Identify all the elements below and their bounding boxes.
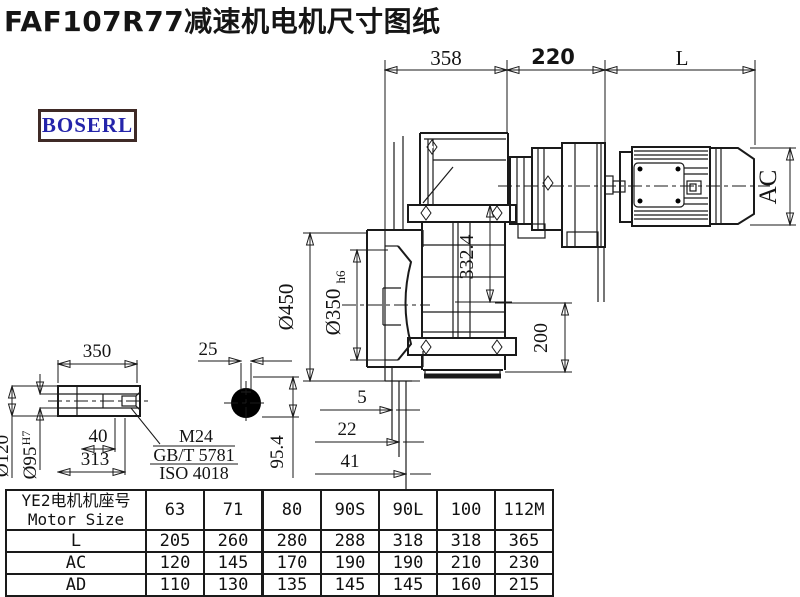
dim-220-label: 220 bbox=[531, 45, 575, 69]
table-cell: 130 bbox=[204, 574, 263, 596]
table-cell: 170 bbox=[263, 552, 322, 574]
dim-25-label: 25 bbox=[199, 339, 218, 360]
table-cell: 190 bbox=[379, 552, 437, 574]
dim-AC-label: AC bbox=[755, 170, 782, 205]
dim-d95-label: Ø95 bbox=[20, 447, 41, 480]
dim-200-label: 200 bbox=[530, 323, 552, 353]
table-header-cn: YE2电机机座号 bbox=[7, 491, 145, 510]
dim-350-label: Ø350 bbox=[321, 289, 345, 336]
dim-40-label: 40 bbox=[89, 426, 108, 447]
dim-313-label: 313 bbox=[81, 449, 110, 470]
table-cell: 145 bbox=[379, 574, 437, 596]
size-col-112M: 112M bbox=[495, 490, 553, 530]
dim-d95-tolerance: H7 bbox=[19, 431, 33, 446]
thread-standard-label: GB/T 5781 bbox=[153, 445, 234, 465]
table-cell: 135 bbox=[263, 574, 322, 596]
dim-d120-label: Ø120 bbox=[0, 435, 13, 477]
table-cell: 210 bbox=[437, 552, 495, 574]
table-cell: 120 bbox=[146, 552, 204, 574]
table-cell: 318 bbox=[379, 530, 437, 552]
table-cell: 230 bbox=[495, 552, 553, 574]
dim-5-label: 5 bbox=[357, 387, 367, 408]
dim-350-tolerance: h6 bbox=[333, 270, 348, 284]
table-cell: 110 bbox=[146, 574, 204, 596]
table-cell: 260 bbox=[204, 530, 263, 552]
dim-350-length-label: 350 bbox=[83, 341, 112, 362]
table-cell: 160 bbox=[437, 574, 495, 596]
size-col-80: 80 bbox=[263, 490, 322, 530]
size-col-100: 100 bbox=[437, 490, 495, 530]
thread-spec-label: M24 bbox=[179, 426, 213, 446]
row-label-AC: AC bbox=[6, 552, 146, 574]
table-cell: 365 bbox=[495, 530, 553, 552]
table-row-AD: AD 110 130 135 145 145 160 215 bbox=[6, 574, 553, 596]
table-cell: 318 bbox=[437, 530, 495, 552]
size-col-90S: 90S bbox=[321, 490, 379, 530]
table-header-row: YE2电机机座号 Motor Size 63 71 80 90S 90L 100… bbox=[6, 490, 553, 530]
table-row-AC: AC 120 145 170 190 190 210 230 bbox=[6, 552, 553, 574]
dim-41-label: 41 bbox=[341, 451, 360, 472]
dim-L-label: L bbox=[676, 46, 689, 70]
table-header-cell: YE2电机机座号 Motor Size bbox=[6, 490, 146, 530]
table-cell: 190 bbox=[321, 552, 379, 574]
step-dimensions: 5 22 41 bbox=[315, 387, 431, 474]
motor-size-table: YE2电机机座号 Motor Size 63 71 80 90S 90L 100… bbox=[5, 489, 554, 597]
row-label-AD: AD bbox=[6, 574, 146, 596]
table-cell: 288 bbox=[321, 530, 379, 552]
dim-450-label: Ø450 bbox=[274, 284, 298, 331]
table-header-en: Motor Size bbox=[7, 510, 145, 529]
table-cell: 205 bbox=[146, 530, 204, 552]
dim-332-label: 332.4 bbox=[456, 235, 478, 280]
drawing-page: { "title": "FAF107R77减速机电机尺寸图纸", "logo":… bbox=[0, 0, 800, 596]
thread-iso-label: ISO 4018 bbox=[159, 463, 229, 483]
size-col-71: 71 bbox=[204, 490, 263, 530]
table-cell: 145 bbox=[204, 552, 263, 574]
motor bbox=[498, 147, 770, 226]
table-row-L: L 205 260 280 288 318 318 365 bbox=[6, 530, 553, 552]
size-col-90L: 90L bbox=[379, 490, 437, 530]
row-label-L: L bbox=[6, 530, 146, 552]
table-cell: 215 bbox=[495, 574, 553, 596]
dim-954-label: 95.4 bbox=[267, 435, 288, 469]
table-cell: 145 bbox=[321, 574, 379, 596]
dim-22-label: 22 bbox=[338, 419, 357, 440]
ac-dimension: AC bbox=[750, 148, 796, 225]
table-cell: 280 bbox=[263, 530, 322, 552]
size-col-63: 63 bbox=[146, 490, 204, 530]
dim-358-label: 358 bbox=[430, 46, 462, 70]
hollow-shaft-detail: 350 40 313 Ø120 Ø95 H7 M24 GB/T 5781 ISO… bbox=[0, 341, 238, 483]
top-dimensions: 358 220 L bbox=[385, 45, 755, 231]
input-housing bbox=[510, 143, 625, 302]
